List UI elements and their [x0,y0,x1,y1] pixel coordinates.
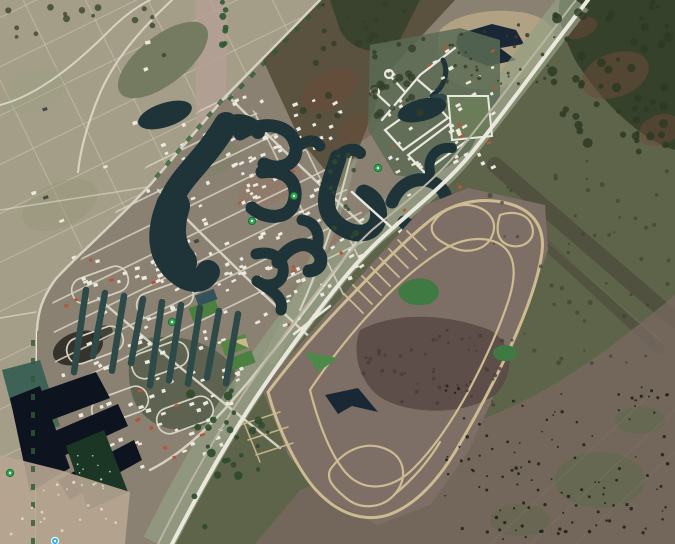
vegetation-speckle [598,84,603,89]
vegetation-speckle [590,361,594,365]
vegetation-speckle [191,493,197,499]
vegetation-speckle [207,449,216,458]
vegetation-speckle [374,18,379,23]
vegetation-speckle [625,503,628,506]
vegetation-speckle [528,460,531,463]
vegetation-speckle [31,506,34,509]
vegetation-speckle [520,466,522,468]
poi-green-marker[interactable] [6,469,13,476]
vegetation-speckle [525,536,527,538]
vegetation-speckle [625,361,627,363]
vegetation-speckle [214,471,221,478]
vegetation-speckle [346,16,350,20]
vegetation-speckle [234,435,239,440]
vegetation-speckle [380,369,384,373]
vegetation-speckle [445,389,448,392]
vegetation-speckle [486,475,488,477]
vegetation-speckle [77,463,79,465]
vegetation-speckle [586,178,589,181]
vegetation-speckle [469,337,471,339]
vegetation-speckle [598,481,600,483]
vegetation-speckle [664,506,667,509]
vegetation-speckle [454,392,456,394]
vegetation-speckle [608,519,611,522]
vegetation-speckle [575,311,579,315]
vegetation-speckle [558,527,561,530]
vegetation-speckle [478,334,483,339]
vegetation-speckle [469,58,472,61]
vegetation-speckle [377,352,381,356]
poi-green-marker[interactable] [290,192,297,199]
vegetation-speckle [229,388,234,393]
vegetation-speckle [313,60,319,66]
vegetation-speckle [325,92,332,99]
vegetation-speckle [604,502,606,504]
vegetation-speckle [574,121,582,129]
vegetation-speckle [500,177,502,179]
vegetation-speckle [5,7,11,13]
vegetation-speckle [82,468,84,470]
vegetation-speckle [523,333,525,335]
poi-green-marker[interactable] [168,318,175,325]
vegetation-speckle [405,70,412,77]
vegetation-speckle [363,25,369,31]
vegetation-speckle [661,518,664,521]
vegetation-speckle [92,483,95,486]
vegetation-speckle [92,455,94,457]
vegetation-speckle [475,66,477,68]
vegetation-speckle [516,235,519,238]
vegetation-speckle [581,232,585,236]
vegetation-speckle [666,462,670,466]
vegetation-speckle [63,15,70,22]
vegetation-speckle [567,300,572,305]
vegetation-speckle [618,409,620,411]
vegetation-speckle [396,42,401,47]
vegetation-speckle [513,45,517,49]
vegetation-speckle [393,369,397,373]
vegetation-speckle [607,233,611,237]
vegetation-speckle [445,458,448,461]
vegetation-speckle [645,527,647,529]
vegetation-speckle [591,435,593,437]
vegetation-speckle [605,282,608,285]
vegetation-speckle [322,28,327,33]
vegetation-speckle [457,387,460,390]
vegetation-speckle [437,385,441,389]
vegetation-speckle [363,20,366,23]
vegetation-speckle [475,350,477,352]
vegetation-speckle [337,154,340,157]
vegetation-speckle [457,51,460,54]
vegetation-speckle [231,462,237,468]
vegetation-speckle [618,467,621,470]
vegetation-speckle [331,41,336,46]
vegetation-speckle [485,434,488,437]
vegetation-speckle [641,531,644,534]
vegetation-speckle [509,189,512,192]
vegetation-speckle [498,367,501,370]
vegetation-speckle [464,65,468,69]
vegetation-speckle [655,193,659,197]
vegetation-speckle [10,533,13,536]
vegetation-speckle [444,384,447,387]
vegetation-speckle [653,412,655,414]
vegetation-speckle [404,372,407,375]
vegetation-speckle [369,32,376,39]
vegetation-speckle [469,380,472,383]
vegetation-speckle [667,258,671,262]
vegetation-speckle [588,300,593,305]
vegetation-speckle [634,405,636,407]
vegetation-speckle [321,46,326,51]
construction-pond-green-3 [493,345,517,361]
vegetation-speckle [547,66,557,76]
vegetation-speckle [382,1,388,7]
vegetation-speckle [561,492,563,494]
vegetation-speckle [665,393,668,396]
vegetation-speckle [620,132,626,138]
vegetation-speckle [577,51,586,60]
vegetation-speckle [223,7,229,13]
vegetation-speckle [458,446,460,448]
vegetation-speckle [567,251,570,254]
vegetation-speckle [497,80,499,82]
vegetation-speckle [583,350,585,352]
vegetation-speckle [517,82,520,85]
vegetation-speckle [500,339,504,343]
vegetation-speckle [579,80,585,86]
poi-blue-marker[interactable] [51,537,58,544]
vegetation-speckle [660,83,668,91]
vegetation-speckle [63,12,67,16]
vegetation-speckle [560,286,564,290]
vegetation-speckle [56,483,59,486]
vegetation-speckle [470,395,473,398]
vegetation-speckle [517,23,520,26]
vegetation-speckle [531,479,533,481]
vegetation-speckle [328,169,333,174]
vegetation-speckle [616,57,620,61]
vegetation-speckle [266,430,270,434]
vegetation-speckle [574,214,577,217]
vegetation-speckle [384,353,387,356]
vegetation-speckle [239,453,244,458]
vegetation-speckle [560,410,563,413]
vegetation-speckle [583,319,586,322]
vegetation-speckle [532,348,536,352]
vegetation-speckle [510,339,513,342]
vegetation-speckle [608,10,616,18]
vegetation-speckle [616,109,621,114]
vegetation-speckle [582,443,585,446]
vegetation-speckle [43,489,45,491]
vegetation-speckle [460,33,463,36]
vegetation-speckle [597,510,600,513]
vegetation-speckle [449,44,452,47]
vegetation-speckle [79,472,81,474]
vegetation-speckle [557,532,560,535]
vegetation-speckle [400,372,404,376]
vegetation-speckle [102,485,104,487]
vegetation-speckle [485,488,488,491]
vegetation-speckle [40,521,42,523]
vegetation-speckle [512,400,515,403]
vegetation-speckle [549,283,553,287]
vegetation-speckle [467,348,469,350]
vegetation-speckle [465,384,468,387]
vegetation-speckle [641,23,649,31]
vegetation-speckle [629,418,631,420]
vegetation-speckle [491,403,495,407]
vegetation-speckle [612,83,621,92]
vegetation-speckle [576,421,579,424]
vegetation-speckle [593,234,597,238]
vegetation-speckle [632,132,640,140]
vegetation-speckle [436,401,440,405]
vegetation-speckle [471,74,473,76]
vegetation-speckle [446,329,449,332]
vegetation-speckle [660,485,663,488]
vegetation-speckle [438,335,441,338]
vegetation-speckle [574,457,577,460]
vegetation-speckle [234,471,243,480]
vegetation-speckle [553,36,555,38]
vegetation-speckle [436,339,438,341]
vegetation-speckle [618,216,621,219]
vegetation-speckle [537,489,540,492]
vegetation-speckle [521,405,523,407]
vegetation-speckle [79,7,85,13]
vegetation-speckle [506,186,509,189]
vegetation-speckle [525,33,529,37]
poi-green-marker[interactable] [374,164,381,171]
vegetation-speckle [543,503,546,506]
vegetation-speckle [403,9,407,13]
vegetation-speckle [81,484,83,486]
vegetation-speckle [72,481,75,484]
vegetation-speckle [553,303,556,306]
vegetation-speckle [483,31,486,34]
vegetation-speckle [604,66,612,74]
vegetation-speckle [219,13,226,20]
vegetation-speckle [100,508,103,511]
vegetation-speckle [552,14,562,24]
vegetation-speckle [557,446,559,448]
vegetation-speckle [551,79,558,86]
vegetation-speckle [493,373,497,377]
vegetation-speckle [575,504,578,507]
vegetation-speckle [521,524,524,527]
vegetation-speckle [132,17,138,23]
vegetation-speckle [516,483,518,485]
vegetation-speckle [194,424,201,431]
vegetation-speckle [560,393,562,395]
vegetation-speckle [421,37,425,41]
vegetation-speckle [650,389,653,392]
vegetation-speckle [322,3,326,7]
vegetation-speckle [467,458,470,461]
vegetation-speckle [341,28,344,31]
vegetation-speckle [350,235,354,239]
vegetation-speckle [105,518,107,520]
vegetation-speckle [627,64,635,72]
vegetation-speckle [580,488,583,491]
vegetation-speckle [354,39,362,47]
vegetation-speckle [554,411,556,413]
vegetation-speckle [372,54,378,60]
vegetation-speckle [400,400,403,403]
vegetation-speckle [658,131,665,138]
poi-green-marker[interactable] [248,217,255,224]
vegetation-speckle [445,79,449,83]
vegetation-speckle [519,442,521,444]
vegetation-speckle [390,105,396,111]
vegetation-speckle [114,521,117,524]
vegetation-speckle [615,479,618,482]
vegetation-speckle [109,471,111,473]
vegetation-speckle [639,257,643,261]
vegetation-speckle [491,400,493,402]
vegetation-speckle [142,6,147,11]
vegetation-speckle [644,226,648,230]
vegetation-speckle [486,530,489,533]
vegetation-speckle [476,68,479,71]
satellite-map-view[interactable] [0,0,675,544]
vegetation-speckle [562,512,564,514]
vegetation-speckle [612,504,615,507]
vegetation-speckle [91,14,95,18]
vegetation-speckle [546,419,549,422]
vegetation-speckle [332,225,337,230]
vegetation-speckle [417,113,420,116]
vegetation-speckle [559,357,563,361]
vegetation-speckle [486,368,489,371]
vegetation-speckle [202,524,207,529]
vegetation-speckle [316,114,322,120]
vegetation-speckle [403,80,410,87]
vegetation-speckle [232,410,237,415]
vegetation-speckle [594,481,596,483]
vegetation-speckle [367,361,371,365]
vegetation-speckle [603,487,605,489]
vegetation-speckle [656,396,659,399]
vegetation-speckle [634,216,638,220]
vegetation-speckle [640,395,643,398]
map-viewport[interactable] [0,0,675,544]
vegetation-speckle [57,494,59,496]
vegetation-speckle [572,113,579,120]
vegetation-speckle [256,467,260,471]
vegetation-speckle [463,417,465,419]
vegetation-speckle [552,414,554,416]
vegetation-speckle [471,469,474,472]
vegetation-speckle [641,386,643,388]
vegetation-speckle [540,530,544,534]
vegetation-speckle [87,504,90,507]
vegetation-speckle [66,488,68,490]
vegetation-speckle [499,509,501,511]
vegetation-speckle [408,94,415,101]
vegetation-speckle [541,53,545,57]
vegetation-speckle [564,530,567,533]
vegetation-speckle [646,303,649,306]
vegetation-speckle [95,4,102,11]
vegetation-speckle [224,420,229,425]
vegetation-speckle [206,445,210,449]
vegetation-speckle [444,495,446,497]
vegetation-speckle [643,106,649,112]
vegetation-speckle [574,8,582,16]
vegetation-speckle [34,31,39,36]
vegetation-speckle [600,182,605,187]
vegetation-speckle [568,243,571,246]
vegetation-speckle [351,168,356,173]
vegetation-speckle [41,511,44,514]
vegetation-speckle [488,193,493,198]
vegetation-speckle [541,431,543,433]
vegetation-speckle [465,51,467,53]
vegetation-speckle [432,377,436,381]
vegetation-speckle [334,112,340,118]
vegetation-speckle [527,506,530,509]
vegetation-speckle [595,524,597,526]
vegetation-speckle [220,0,225,5]
vegetation-speckle [79,519,81,521]
vegetation-speckle [646,132,655,141]
vegetation-speckle [210,416,217,423]
vegetation-speckle [408,45,416,53]
vegetation-speckle [665,169,669,173]
vegetation-speckle [506,440,509,443]
vegetation-speckle [477,76,481,80]
vegetation-speckle [551,478,553,480]
vegetation-speckle [456,384,459,387]
vegetation-speckle [447,473,450,476]
vegetation-speckle [537,462,540,465]
vegetation-speckle [622,314,626,318]
vegetation-speckle [361,371,365,375]
vegetation-speckle [556,360,561,365]
vegetation-speckle [226,458,231,463]
vegetation-speckle [501,475,504,478]
vegetation-speckle [588,495,591,498]
vegetation-speckle [588,530,592,534]
vegetation-speckle [564,36,569,41]
vegetation-speckle [517,472,520,475]
vegetation-speckle [554,176,558,180]
vegetation-speckle [372,50,377,55]
vegetation-speckle [150,15,155,20]
vegetation-speckle [560,111,567,118]
vegetation-speckle [409,348,413,352]
vegetation-speckle [648,395,650,397]
vegetation-speckle [515,530,517,532]
vegetation-speckle [522,501,525,504]
vegetation-speckle [519,68,522,71]
vegetation-speckle [616,199,620,203]
vegetation-speckle [634,399,636,401]
vegetation-speckle [634,95,642,103]
vegetation-speckle [150,23,156,29]
vegetation-speckle [508,75,510,77]
vegetation-speckle [630,293,633,296]
vegetation-speckle [374,112,381,119]
vegetation-speckle [662,141,669,148]
vegetation-speckle [630,38,637,45]
vegetation-speckle [454,64,457,67]
vegetation-speckle [205,424,212,431]
